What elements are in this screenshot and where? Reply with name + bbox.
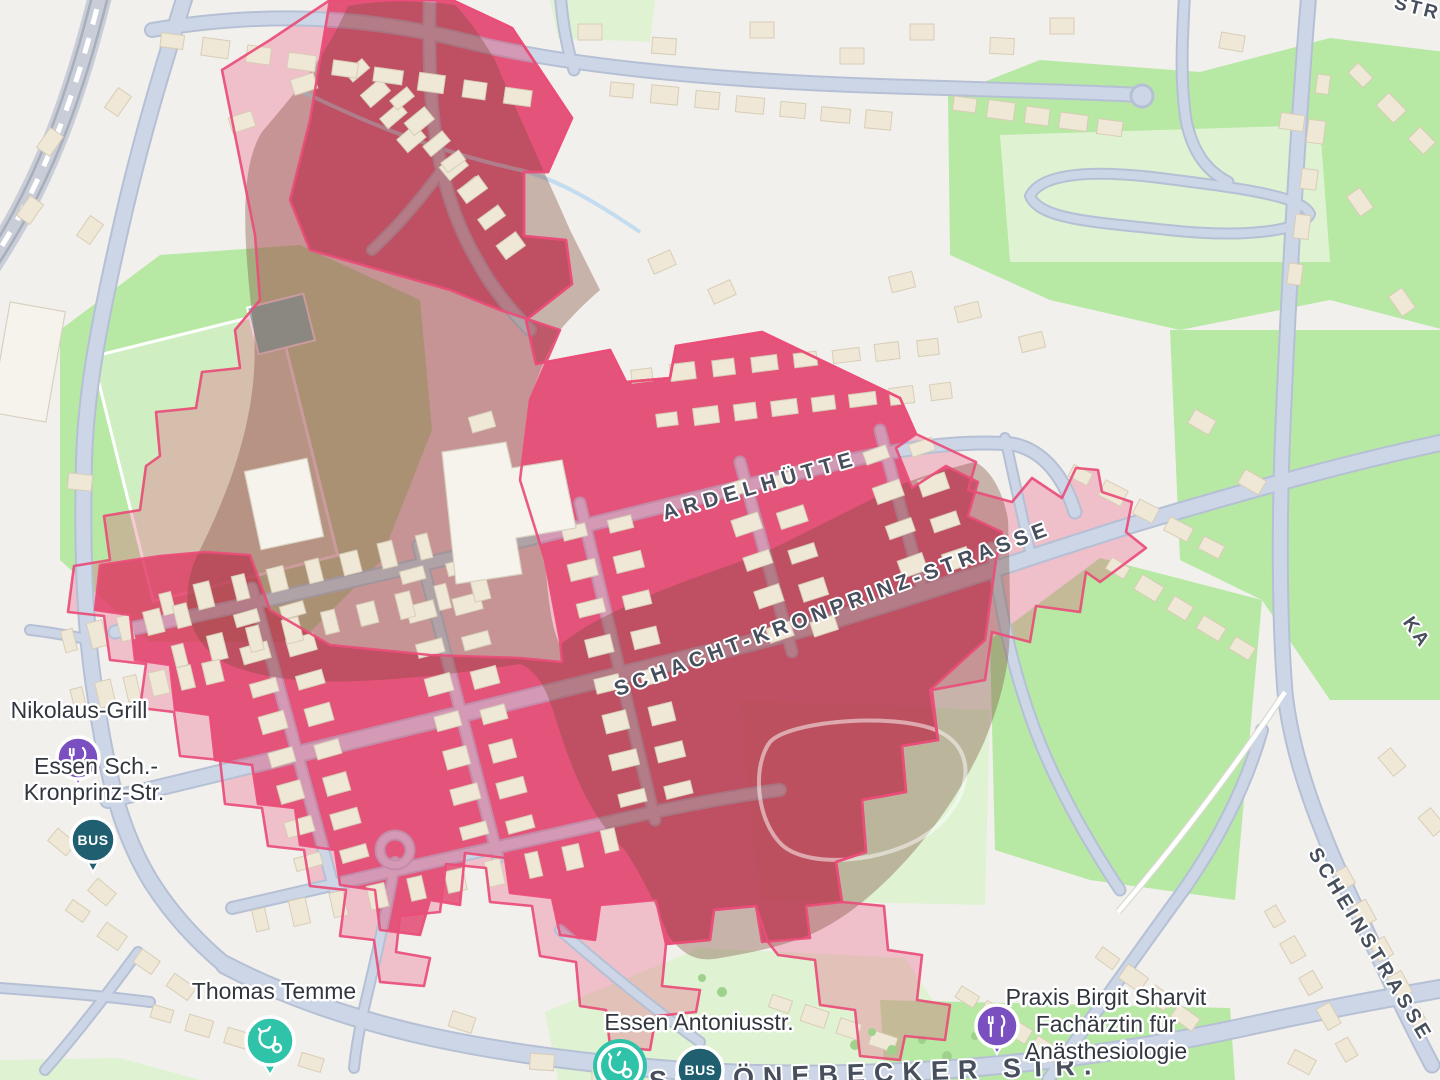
- bus-icon: BUS: [684, 1062, 715, 1078]
- poi-label-stop-west-line1: Essen Sch.-: [34, 753, 158, 779]
- poi-label-nikolaus-grill: Nikolaus-Grill: [11, 697, 148, 723]
- poi-label-stop-south: Essen Antoniusstr.: [604, 1009, 793, 1035]
- bus-stop-marker-south[interactable]: BUS: [677, 1047, 723, 1080]
- poi-label-stop-west-line2: Kronprinz-Str.: [24, 779, 165, 805]
- map-canvas[interactable]: ARDELHÜTTE SCHACHT-KRONPRINZ-STRASSE SCH…: [0, 0, 1440, 1080]
- poi-label-praxis-line2: Fachärztin für: [1036, 1011, 1177, 1037]
- poi-label-praxis-line1: Praxis Birgit Sharvit: [1006, 984, 1207, 1010]
- poi-label-praxis-line3: Anästhesiologie: [1025, 1038, 1187, 1064]
- poi-label-thomas-temme: Thomas Temme: [192, 978, 356, 1004]
- bus-icon: BUS: [77, 832, 108, 848]
